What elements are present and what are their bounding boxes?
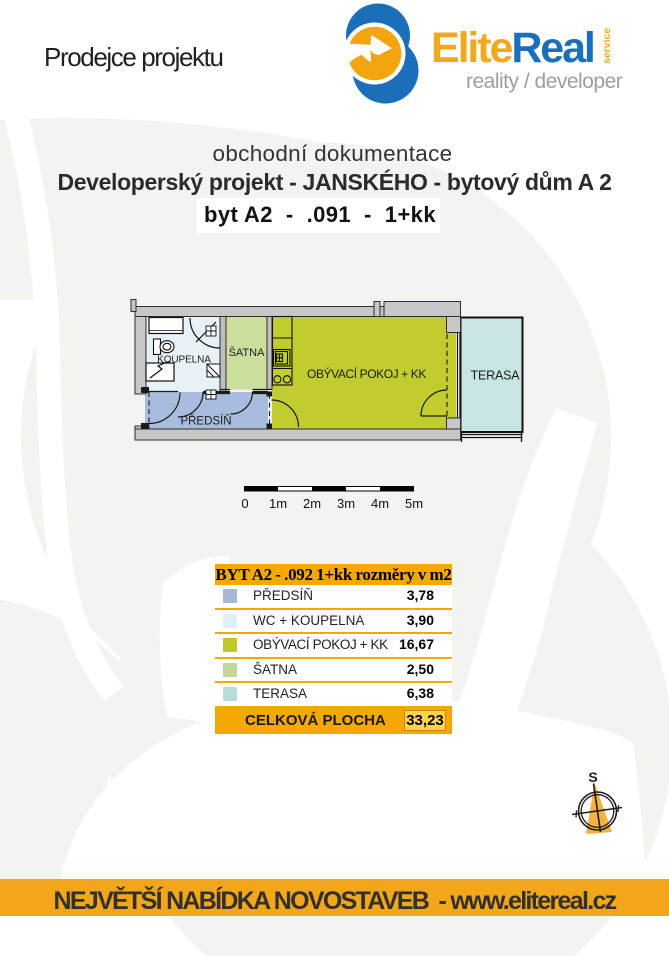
svg-text:ŠATNA: ŠATNA	[229, 346, 266, 359]
svg-text:0: 0	[241, 496, 248, 511]
svg-text:S: S	[588, 769, 597, 785]
svg-text:3m: 3m	[337, 496, 355, 511]
svg-text:PŘEDSÍŇ: PŘEDSÍŇ	[180, 415, 231, 428]
svg-text:TERASA: TERASA	[471, 369, 521, 383]
svg-text:4m: 4m	[371, 496, 389, 511]
svg-text:KOUPELNA: KOUPELNA	[157, 355, 211, 366]
svg-text:1m: 1m	[269, 496, 287, 511]
svg-text:5m: 5m	[405, 496, 423, 511]
svg-text:2m: 2m	[303, 496, 321, 511]
svg-text:OBÝVACÍ POKOJ + KK: OBÝVACÍ POKOJ + KK	[307, 366, 426, 381]
